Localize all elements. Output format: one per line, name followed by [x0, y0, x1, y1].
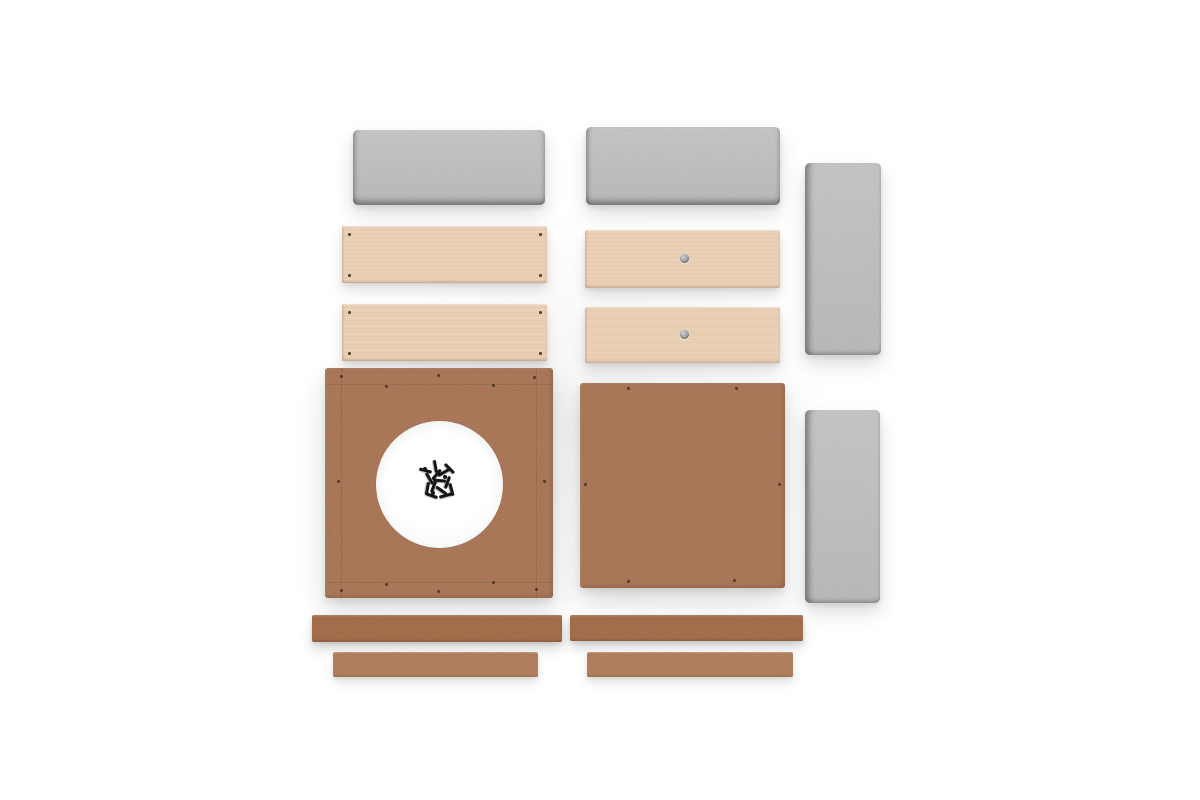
pilot-hole-dot — [533, 376, 536, 379]
pilot-hole-dot — [584, 483, 587, 486]
screw-head — [423, 467, 427, 471]
strip-light-left — [333, 652, 538, 677]
pilot-hole-dot — [385, 583, 388, 586]
wood-plank-left-1 — [342, 226, 547, 283]
screw-head — [443, 475, 447, 479]
foam-panel-right-lower — [805, 410, 880, 603]
pilot-hole-dot — [348, 274, 351, 277]
pilot-hole-dot — [539, 311, 542, 314]
pilot-hole-dot — [340, 375, 343, 378]
texture-grain — [312, 615, 562, 642]
pilot-hole-dot — [539, 274, 542, 277]
pilot-hole-dot — [627, 387, 630, 390]
pilot-hole-dot — [385, 385, 388, 388]
foam-panel-right-upper — [805, 163, 881, 355]
pilot-hole-dot — [492, 384, 495, 387]
texture-grain — [353, 130, 545, 205]
texture-grain — [333, 652, 538, 677]
pilot-hole-dot — [539, 233, 542, 236]
studio-background — [0, 0, 1200, 800]
wood-plank-right-2 — [585, 307, 780, 363]
screw-pile — [417, 461, 461, 505]
cam-fitting — [680, 330, 689, 339]
cam-fitting — [680, 254, 689, 263]
pilot-hole-dot — [535, 588, 538, 591]
pilot-hole-dot — [733, 579, 736, 582]
pilot-hole-dot — [539, 352, 542, 355]
score-line — [536, 368, 537, 598]
plain-board — [580, 383, 785, 588]
score-line — [325, 384, 553, 385]
foam-panel-top-left — [353, 130, 545, 205]
score-line — [341, 368, 342, 598]
texture-grain — [586, 127, 780, 205]
pilot-hole-dot — [437, 374, 440, 377]
pilot-hole-dot — [337, 480, 340, 483]
strip-dark-right — [570, 615, 803, 641]
pilot-hole-dot — [437, 590, 440, 593]
wood-plank-right-1 — [585, 230, 780, 288]
texture-grain — [805, 163, 881, 355]
pilot-hole-dot — [492, 581, 495, 584]
texture-grain — [805, 410, 880, 603]
score-line — [325, 582, 553, 583]
pilot-hole-dot — [340, 589, 343, 592]
pilot-hole-dot — [627, 580, 630, 583]
texture-grain — [580, 383, 785, 588]
texture-grain — [587, 652, 793, 677]
pilot-hole-dot — [778, 483, 781, 486]
strip-light-right — [587, 652, 793, 677]
screw-head — [431, 491, 435, 495]
pilot-hole-dot — [348, 352, 351, 355]
wood-plank-left-2 — [342, 304, 547, 361]
pilot-hole-dot — [735, 387, 738, 390]
pilot-hole-dot — [348, 311, 351, 314]
circular-cutout — [376, 421, 503, 548]
board-with-cutout — [325, 368, 553, 598]
strip-dark-left — [312, 615, 562, 642]
texture-grain — [570, 615, 803, 641]
pilot-hole-dot — [348, 233, 351, 236]
foam-panel-top-right — [586, 127, 780, 205]
pilot-hole-dot — [543, 480, 546, 483]
